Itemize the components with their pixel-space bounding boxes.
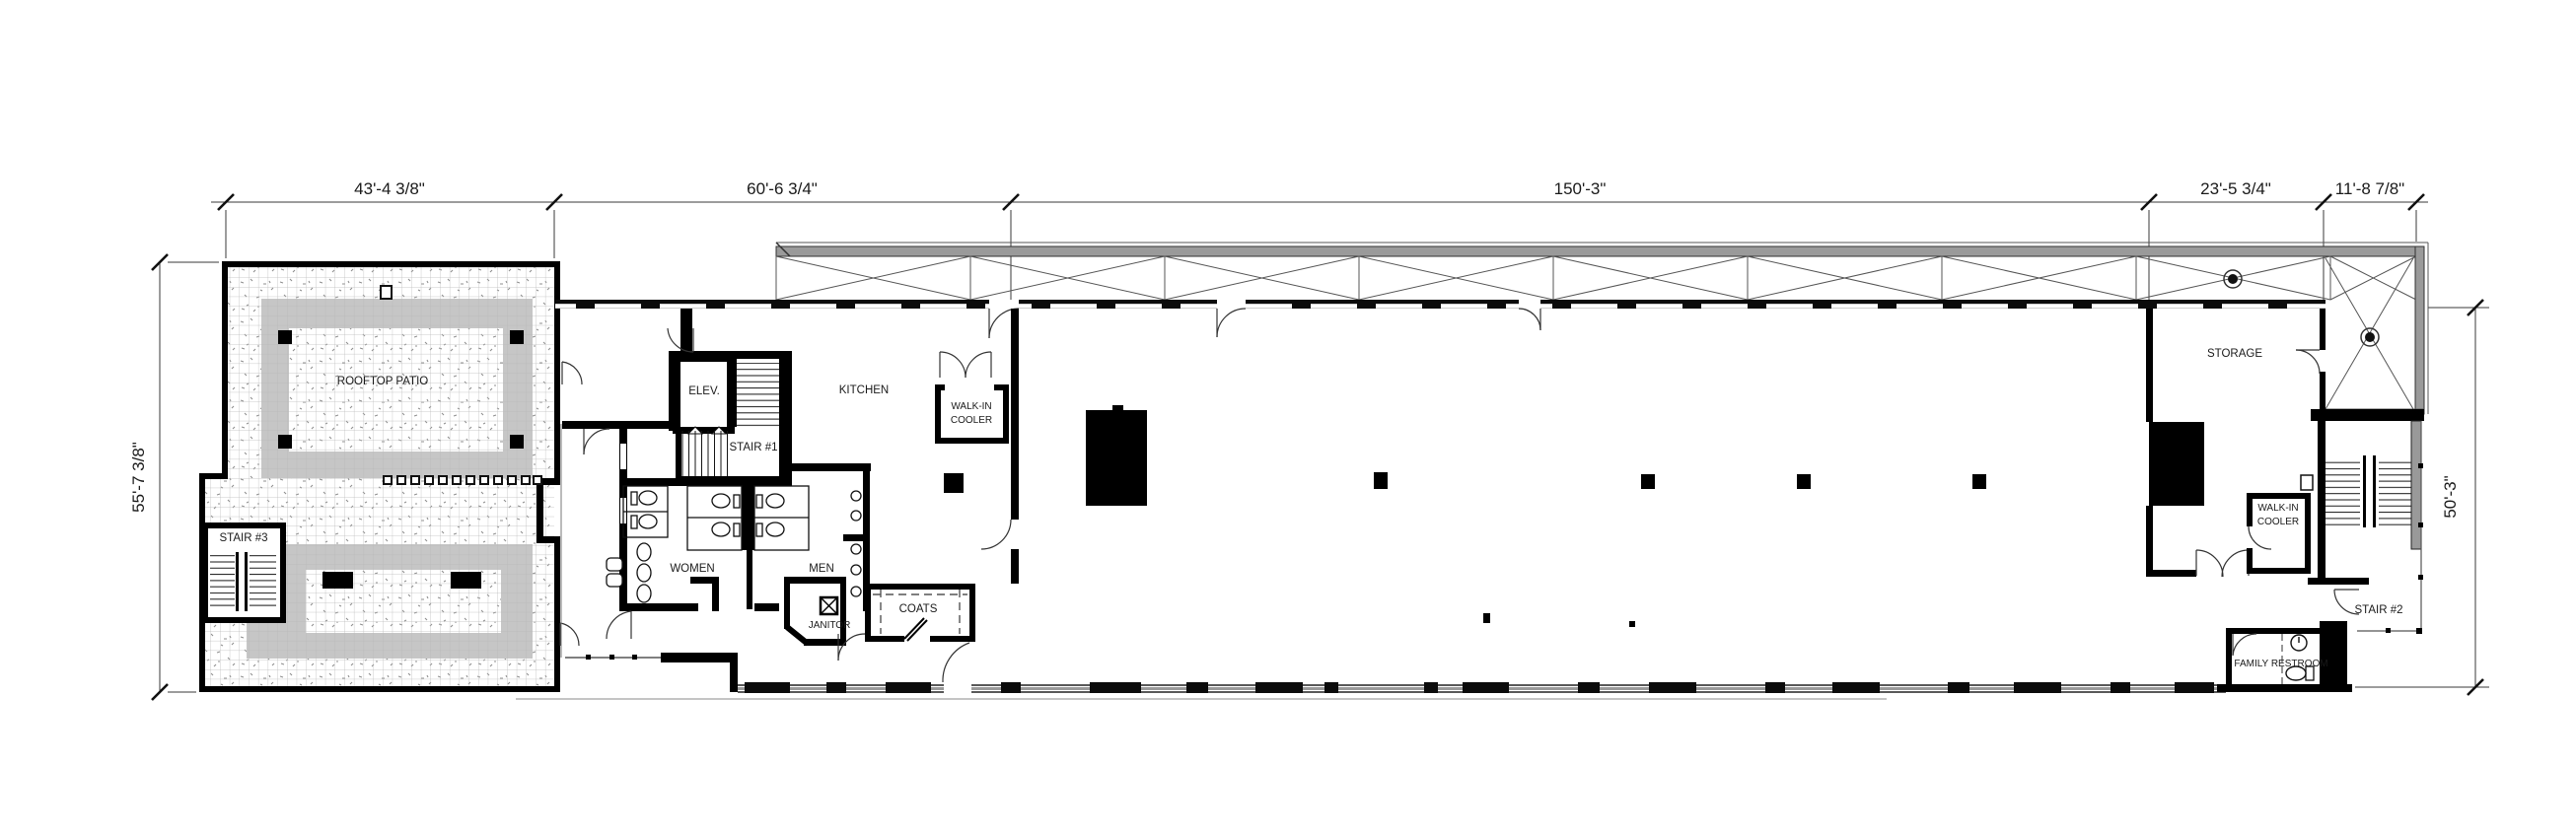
north-wall: [555, 300, 2326, 338]
hall-columns: [1374, 472, 1986, 489]
kitchen-column: [944, 473, 964, 493]
label-stair-2: STAIR #2: [2355, 604, 2403, 616]
dim-top-3: 150'-3": [1554, 179, 1607, 198]
main-hall: [1086, 405, 1986, 627]
coats-room: [865, 584, 975, 682]
storage-block: [2149, 422, 2204, 506]
label-storage: STORAGE: [2207, 348, 2262, 360]
dim-top-2: 60'-6 3/4": [747, 179, 818, 198]
south-wall: [516, 653, 2226, 699]
floor-plan-drawing: 43'-4 3/8" 60'-6 3/4" 150'-3" 23'-5 3/4"…: [0, 0, 2576, 836]
patio-gate: [381, 286, 392, 299]
label-cooler-kitchen-2: COOLER: [951, 415, 992, 426]
janitor-angled-wall: [787, 627, 808, 644]
roof-canopy: [776, 243, 2428, 414]
dim-top-4: 23'-5 3/4": [2200, 179, 2271, 198]
dim-top-5: 11'-8 7/8": [2335, 179, 2404, 198]
label-kitchen: KITCHEN: [839, 384, 889, 396]
hall-floor-marks: [1483, 613, 1635, 627]
label-stair-3: STAIR #3: [220, 532, 268, 544]
dim-right: 50'-3": [2441, 475, 2460, 518]
label-cooler-storage-2: COOLER: [2257, 517, 2299, 527]
label-family-restroom: FAMILY RESTROOM: [2234, 659, 2327, 669]
mop-sink: [821, 597, 837, 614]
patio-doors: [560, 362, 582, 646]
label-elevator: ELEV.: [688, 385, 720, 397]
north-doors: [989, 309, 1540, 338]
dim-top-1: 43'-4 3/8": [354, 179, 425, 198]
canopy-x-braces: [776, 256, 2416, 300]
label-rooftop-patio: ROOFTOP PATIO: [337, 376, 428, 387]
kitchen-area: [935, 309, 1019, 584]
patio-fence: [565, 655, 663, 660]
label-men: MEN: [809, 563, 834, 575]
family-restroom: [2217, 621, 2352, 692]
label-women: WOMEN: [670, 563, 714, 575]
east-wing: [2146, 309, 2424, 692]
label-coats: COATS: [899, 603, 938, 615]
core-area: [562, 309, 1019, 682]
label-janitor: JANITOR: [809, 620, 851, 631]
label-cooler-storage-1: WALK-IN: [2257, 503, 2298, 514]
label-stair-1: STAIR #1: [730, 442, 778, 453]
hall-stage-block: [1086, 410, 1147, 506]
rooftop-patio-area: [199, 261, 663, 692]
floor-plan-page: 43'-4 3/8" 60'-6 3/4" 150'-3" 23'-5 3/4"…: [0, 0, 2576, 836]
dim-left: 55'-7 3/8": [129, 442, 148, 513]
label-cooler-kitchen-1: WALK-IN: [951, 401, 991, 412]
stair-2: [2308, 409, 2424, 634]
